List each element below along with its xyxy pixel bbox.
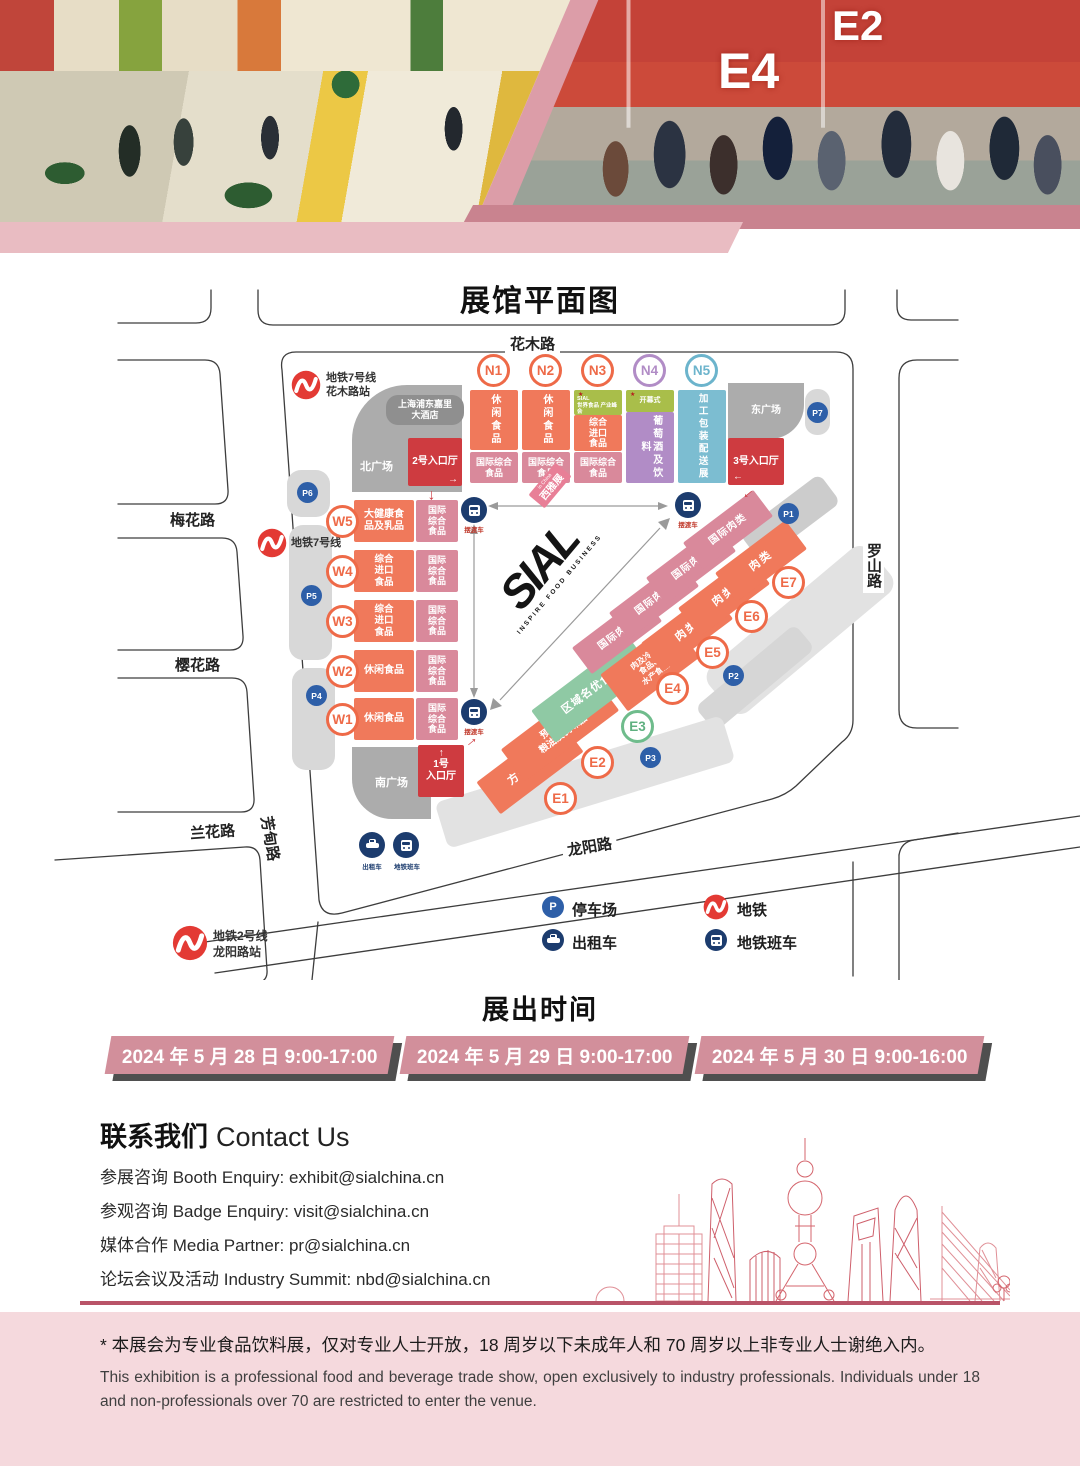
parking-p7: P7 (807, 402, 828, 423)
hall-n3: 综合 进口 食品 (574, 415, 622, 451)
contact-industry-summit: 论坛会议及活动 Industry Summit: nbd@sialchina.c… (100, 1265, 490, 1290)
date-2: 2024 年 5 月 29 日 9:00-17:00 (417, 1042, 673, 1069)
legend-metro-bus-label: 地铁班车 (737, 932, 797, 953)
hall-n5: 加工包装配送展 (678, 390, 726, 483)
arrow-left-icon: → (733, 473, 743, 483)
shuttle-stop-label: 摆渡车 (668, 519, 708, 529)
shuttle-bus-stop-icon (461, 497, 487, 523)
street-yinghua-rd: 樱花路 (170, 654, 225, 675)
hall-n2-badge: N2 (529, 354, 562, 387)
star-icon: ★ (630, 392, 635, 398)
kerry-hotel: 上海浦东嘉里 大酒店 (386, 395, 464, 425)
shanghai-skyline-art (590, 1138, 1010, 1303)
street-huamu-rd: 花木路 (505, 333, 560, 354)
arrow-right-icon: → (448, 475, 458, 485)
shuttle-bus-stop-icon (675, 492, 701, 518)
disclaimer-box: * 本展会为专业食品饮料展，仅对专业人士开放，18 周岁以下未成年人和 70 周… (0, 1312, 1080, 1466)
contact-media-partner: 媒体合作 Media Partner: pr@sialchina.cn (100, 1231, 410, 1256)
arrow-down-icon: → (426, 488, 441, 503)
contact-badge-enquiry: 参观咨询 Badge Enquiry: visit@sialchina.cn (100, 1197, 429, 1222)
hall-n1-sub: 国际综合 食品 (470, 452, 518, 483)
hall-w2-sub: 国际 综合 食品 (416, 650, 458, 692)
metro-icon (257, 528, 287, 558)
legend-taxi-label: 出租车 (572, 932, 617, 953)
contact-title-en: Contact Us (216, 1122, 350, 1152)
legend-metro-label: 地铁 (737, 899, 767, 920)
hall-n2: 休闲食品 (522, 390, 570, 450)
shuttle-stop-label: 摆渡车 (454, 726, 494, 736)
shuttle-stop-label: 摆渡车 (454, 524, 494, 534)
date-1: 2024 年 5 月 28 日 9:00-17:00 (122, 1042, 378, 1069)
hall-n1-label: 休闲食品 (488, 394, 500, 446)
metro-icon (172, 925, 208, 961)
parking-p3: P3 (640, 747, 661, 768)
hall-n3-summit-tag: ★SIAL 世界食品 产业峰会 (574, 390, 622, 415)
schedule-title: 展出时间 (0, 988, 1080, 1027)
hall-n5-badge: N5 (685, 354, 718, 387)
hall-n3-badge: N3 (581, 354, 614, 387)
flyer-page: E4 E2 展馆平面图 (0, 0, 1080, 1466)
venue-floor-plan: 花木路 梅花路 樱花路 兰花路 芳甸路 罗山路 龙阳路 地铁7号线花木路站 地铁… (0, 270, 1080, 980)
hall-n3-sub: 国际综合 食品 (574, 452, 622, 483)
street-lanhua-rd: 兰花路 (184, 819, 240, 844)
hall-w2: 休闲食品 (354, 650, 414, 692)
shuttle-bus-stop-icon (461, 699, 487, 725)
hall-e7-badge: E7 (772, 566, 805, 599)
contact-title-zh: 联系我们 (100, 1122, 208, 1152)
parking-p5: P5 (301, 585, 322, 606)
date-3: 2024 年 5 月 30 日 9:00-16:00 (712, 1042, 968, 1069)
metro-bus-label: 地铁班车 (386, 861, 428, 871)
metro-station-text: 龙阳路站 (213, 945, 261, 959)
bus-icon (711, 935, 722, 946)
photo-banner-e2: E2 (832, 2, 883, 50)
hall-e4-badge: E4 (656, 672, 689, 705)
hall-n4-label: 葡萄酒及饮料 (638, 412, 662, 483)
hall-e5-badge: E5 (696, 636, 729, 669)
legend-parking-label: 停车场 (572, 899, 617, 920)
date-banner-3: 2024 年 5 月 30 日 9:00-16:00 (695, 1036, 985, 1074)
hall-n4-opening-text: 开幕式 (640, 397, 661, 405)
hall-n4-badge: N4 (633, 354, 666, 387)
disclaimer-en: This exhibition is a professional food a… (100, 1366, 980, 1414)
hall-w2-badge: W2 (326, 655, 359, 688)
legend-metro-icon (703, 894, 729, 920)
metro-line-text: 地铁7号线 (326, 372, 376, 384)
legend-parking-icon: P (542, 896, 564, 918)
hall-w4: 综合 进口 食品 (354, 550, 414, 592)
car-icon (547, 938, 560, 943)
metro-line7-label: 地铁7号线 (291, 536, 341, 550)
hall-w4-sub: 国际 综合 食品 (416, 550, 458, 592)
hall-n5-label: 加工包装配送展 (696, 393, 707, 481)
bus-icon (469, 505, 480, 516)
contact-title: 联系我们Contact Us (100, 1115, 350, 1154)
hall-w3: 综合 进口 食品 (354, 600, 414, 642)
hall-n2-label: 休闲食品 (540, 394, 552, 446)
metro-line2-longyang-label: 地铁2号线龙阳路站 (213, 929, 268, 960)
hall-w4-badge: W4 (326, 555, 359, 588)
star-icon: ★ (578, 392, 583, 398)
bus-icon (469, 707, 480, 718)
bus-icon (683, 500, 694, 511)
hall-e1-badge: E1 (544, 782, 577, 815)
north-plaza-label: 北广场 (360, 458, 393, 474)
hall-e6-badge: E6 (735, 600, 768, 633)
contact-booth-enquiry: 参展咨询 Booth Enquiry: exhibit@sialchina.cn (100, 1163, 444, 1188)
section-divider (80, 1301, 1000, 1305)
hall-w1: 休闲食品 (354, 698, 414, 740)
metro-line-text: 地铁2号线 (213, 929, 268, 943)
hall-n1-badge: N1 (477, 354, 510, 387)
taxi-icon (359, 832, 385, 858)
metro-icon (291, 370, 321, 400)
legend-metro-bus-icon (705, 929, 727, 951)
hall-w5-badge: W5 (326, 505, 359, 538)
arrow-up-icon: → (436, 748, 446, 758)
bus-icon (401, 840, 412, 851)
hall-w3-badge: W3 (326, 605, 359, 638)
metro-line7-huamu-label: 地铁7号线花木路站 (326, 371, 376, 400)
hall-w5-sub: 国际 综合 食品 (416, 500, 458, 542)
street-luoshan-rd: 罗山路 (863, 538, 884, 593)
parking-p4: P4 (306, 685, 327, 706)
metro-bus-icon (393, 832, 419, 858)
hall-w5: 大健康食 品及乳品 (354, 500, 414, 542)
parking-p2: P2 (723, 665, 744, 686)
photo-banner-e4: E4 (718, 42, 779, 100)
hall-n4: 葡萄酒及饮料 (626, 412, 674, 483)
date-banner-1: 2024 年 5 月 28 日 9:00-17:00 (105, 1036, 395, 1074)
hall-w1-sub: 国际 综合 食品 (416, 698, 458, 740)
hall-n4-opening-tag: ★开幕式 (626, 390, 674, 412)
legend-taxi-icon (542, 929, 564, 951)
parking-p6: P6 (297, 482, 318, 503)
parking-p1: P1 (778, 503, 799, 524)
car-icon (366, 843, 379, 848)
date-banner-2: 2024 年 5 月 29 日 9:00-17:00 (400, 1036, 690, 1074)
disclaimer-zh: * 本展会为专业食品饮料展，仅对专业人士开放，18 周岁以下未成年人和 70 周… (100, 1332, 1000, 1357)
hall-n1: 休闲食品 (470, 390, 518, 450)
hall-w1-badge: W1 (326, 703, 359, 736)
street-meihua-rd: 梅花路 (165, 509, 220, 530)
metro-station-text: 花木路站 (326, 386, 370, 398)
taxi-label: 出租车 (355, 861, 389, 871)
hall-e3-badge: E3 (621, 710, 654, 743)
hall-e2-badge: E2 (581, 746, 614, 779)
